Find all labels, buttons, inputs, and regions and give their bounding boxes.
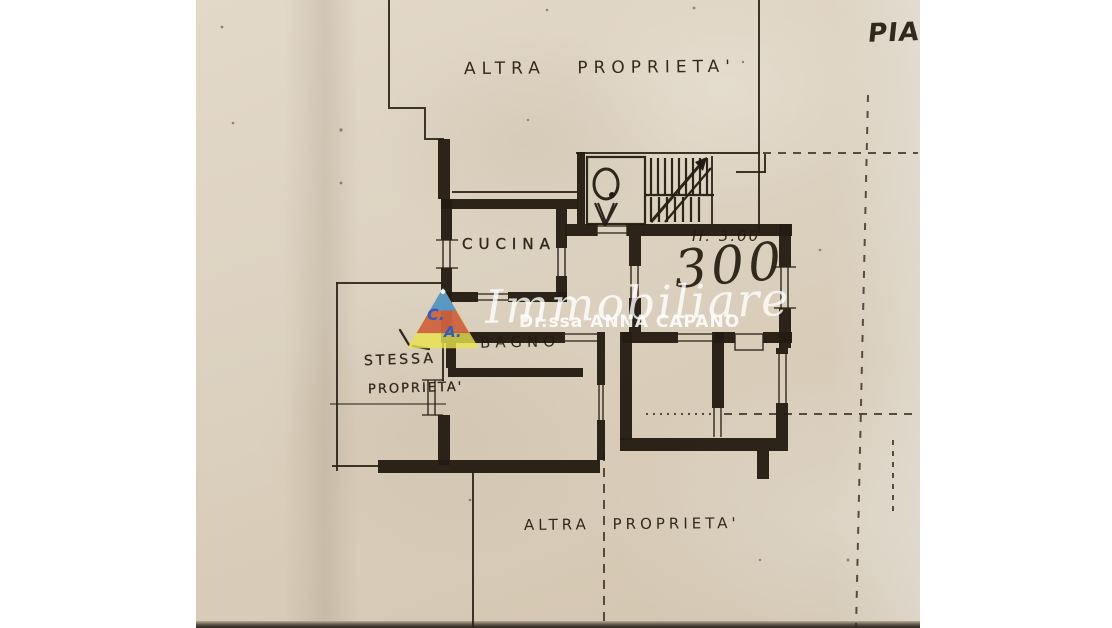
label-piano-partial: PIA: [867, 19, 922, 47]
paper-sheet: ALTRA PROPRIETA' PIA CUCINA H. 3.00 300 …: [196, 0, 920, 628]
label-cucina: CUCINA: [462, 237, 556, 252]
agency-watermark: C. A. Immobiliare Dr.ssa ANNA CAPANO: [403, 280, 963, 360]
logo-letter-a: A.: [444, 325, 462, 340]
label-altra-proprieta-bottom: ALTRA PROPRIETA': [524, 516, 740, 533]
watermark-subtitle: Dr.ssa ANNA CAPANO: [519, 314, 740, 331]
label-stessa-proprieta-line2: PROPRIETA': [368, 381, 464, 396]
logo-letter-c: C.: [427, 307, 445, 323]
elevator-icon: [587, 157, 645, 226]
stairs-icon: [645, 157, 714, 222]
floorplan-photo: ALTRA PROPRIETA' PIA CUCINA H. 3.00 300 …: [0, 0, 1112, 628]
label-altra-proprieta-top: ALTRA PROPRIETA': [464, 59, 736, 78]
